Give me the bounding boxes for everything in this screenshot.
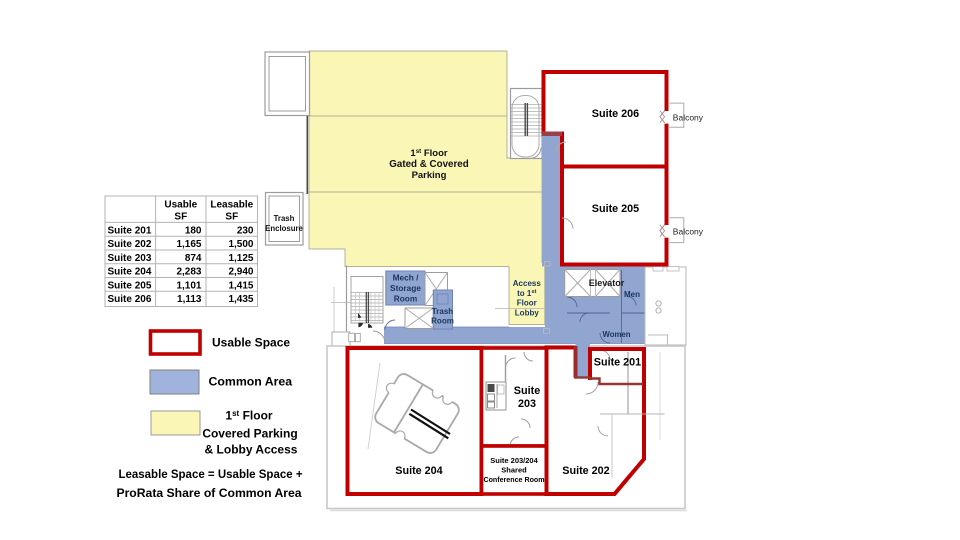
- svg-text:180: 180: [185, 225, 202, 236]
- svg-text:1,113: 1,113: [177, 294, 202, 305]
- svg-text:Room: Room: [431, 317, 454, 326]
- svg-text:Suite 201: Suite 201: [594, 357, 641, 369]
- svg-text:Usable Space: Usable Space: [212, 336, 290, 350]
- svg-text:Suite 204: Suite 204: [108, 267, 152, 278]
- svg-text:Access: Access: [513, 279, 542, 288]
- svg-text:Leasable: Leasable: [210, 200, 253, 211]
- svg-text:1,500: 1,500: [228, 239, 253, 250]
- svg-text:Trash: Trash: [432, 307, 453, 316]
- svg-text:1,165: 1,165: [176, 239, 201, 250]
- svg-text:203: 203: [518, 398, 536, 410]
- svg-text:& Lobby Access: & Lobby Access: [205, 443, 298, 457]
- svg-text:874: 874: [185, 253, 202, 264]
- svg-text:Parking: Parking: [412, 170, 447, 181]
- svg-text:SF: SF: [225, 212, 238, 223]
- svg-text:Suite 204: Suite 204: [395, 465, 442, 477]
- svg-text:Leasable Space = Usable Space: Leasable Space = Usable Space +: [118, 469, 302, 481]
- svg-text:Balcony: Balcony: [673, 226, 704, 236]
- svg-text:Shared: Shared: [501, 466, 527, 475]
- svg-text:Suite 203/204: Suite 203/204: [490, 456, 538, 465]
- svg-text:1,101: 1,101: [176, 280, 201, 291]
- svg-text:230: 230: [237, 225, 254, 236]
- svg-text:1,415: 1,415: [228, 280, 253, 291]
- svg-text:Gated & Covered: Gated & Covered: [389, 159, 469, 170]
- svg-text:Suite 202: Suite 202: [562, 465, 609, 477]
- svg-text:Suite: Suite: [514, 385, 540, 397]
- svg-text:Enclosure: Enclosure: [265, 224, 303, 233]
- svg-text:Storage: Storage: [390, 283, 421, 293]
- svg-text:SF: SF: [174, 212, 187, 223]
- svg-text:Suite 206: Suite 206: [108, 294, 152, 305]
- svg-text:ProRata Share of Common Area: ProRata Share of Common Area: [116, 486, 301, 500]
- svg-text:Men: Men: [624, 290, 640, 299]
- svg-text:Balcony: Balcony: [673, 112, 704, 122]
- svg-text:Covered Parking: Covered Parking: [202, 427, 297, 441]
- svg-text:Common Area: Common Area: [209, 375, 293, 389]
- svg-text:2,283: 2,283: [176, 267, 201, 278]
- svg-text:Women: Women: [602, 330, 630, 339]
- svg-text:Lobby: Lobby: [515, 308, 540, 317]
- svg-text:Trash: Trash: [274, 214, 295, 223]
- svg-text:1st Floor: 1st Floor: [225, 409, 272, 423]
- svg-text:Suite 201: Suite 201: [108, 225, 152, 236]
- svg-text:Room: Room: [394, 294, 418, 304]
- svg-text:Elevator: Elevator: [589, 278, 625, 288]
- svg-text:Floor: Floor: [517, 299, 537, 308]
- svg-text:Suite 202: Suite 202: [108, 239, 152, 250]
- svg-text:Usable: Usable: [164, 200, 197, 211]
- svg-text:Suite 205: Suite 205: [592, 203, 639, 215]
- svg-text:2,940: 2,940: [228, 267, 253, 278]
- svg-text:Suite 203: Suite 203: [108, 253, 152, 264]
- svg-text:1,125: 1,125: [228, 253, 253, 264]
- svg-text:Conference Room: Conference Room: [483, 476, 544, 484]
- svg-text:Suite 205: Suite 205: [108, 280, 152, 291]
- svg-text:Suite 206: Suite 206: [592, 108, 639, 120]
- svg-text:Mech /: Mech /: [393, 273, 420, 283]
- svg-text:1,435: 1,435: [228, 294, 253, 305]
